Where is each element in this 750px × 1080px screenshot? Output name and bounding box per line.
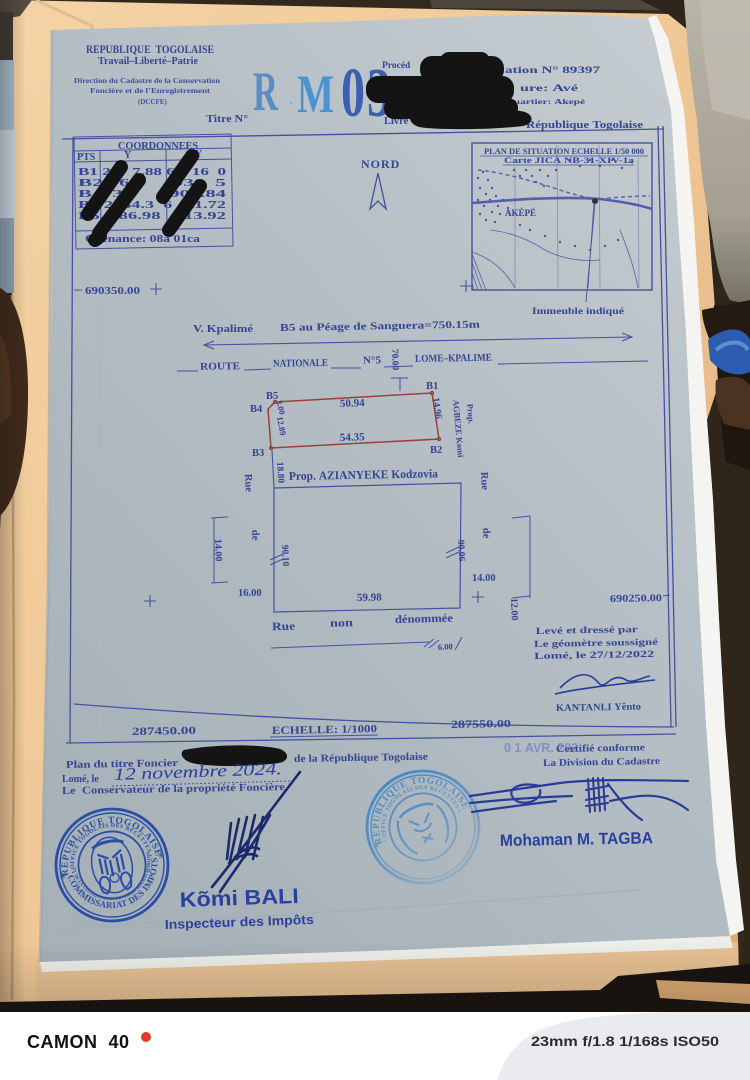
svg-text:ation N° 89397: ation N° 89397 — [505, 65, 600, 76]
svg-text:non: non — [330, 617, 354, 630]
svg-text:La Division du Cadastre: La Division du Cadastre — [543, 756, 661, 769]
svg-text:M: M — [297, 64, 334, 124]
svg-text:N°5: N°5 — [363, 355, 381, 366]
svg-text:690250.00: 690250.00 — [610, 593, 662, 605]
svg-text:Lomé, le: Lomé, le — [62, 774, 99, 785]
svg-text:70.00: 70.00 — [389, 349, 400, 371]
svg-text:V. Kpalimé: V. Kpalimé — [193, 324, 253, 335]
svg-text:287550.00: 287550.00 — [451, 718, 512, 731]
svg-text:Mohaman M. TAGBA: Mohaman M. TAGBA — [500, 829, 653, 850]
svg-text:de la République Togolaise: de la République Togolaise — [294, 752, 429, 765]
svg-text:Rue: Rue — [272, 621, 295, 634]
svg-text:Y: Y — [124, 150, 132, 161]
svg-text:0: 0 — [341, 55, 365, 132]
svg-text:dénommée: dénommée — [395, 613, 453, 627]
svg-text:90.06: 90.06 — [455, 540, 466, 562]
svg-text:12.00: 12.00 — [508, 598, 520, 621]
svg-text:B1: B1 — [426, 381, 438, 392]
svg-text:Titre N°: Titre N° — [206, 114, 248, 125]
svg-text:50.94: 50.94 — [340, 397, 366, 410]
svg-text:Rue: Rue — [242, 474, 254, 493]
svg-text:REPUBLIQUE TOGOLAISE: REPUBLIQUE TOGOLAISE — [86, 42, 214, 56]
svg-text:23mm f/1.8 1/168s ISO50: 23mm f/1.8 1/168s ISO50 — [531, 1033, 719, 1049]
svg-text:6.00: 6.00 — [438, 641, 453, 652]
svg-text:Certifié conforme: Certifié conforme — [556, 742, 646, 755]
svg-text:59.98: 59.98 — [357, 592, 382, 604]
svg-text:Prop. AZIANYEKE Kodzovia: Prop. AZIANYEKE Kodzovia — [289, 466, 438, 483]
svg-text:ure: Avé: ure: Avé — [520, 84, 578, 94]
svg-text:287450.00: 287450.00 — [132, 725, 197, 738]
svg-text:ROUTE: ROUTE — [200, 361, 240, 373]
svg-text:(DCCFE): (DCCFE) — [138, 98, 167, 106]
svg-text:Direction du Cadastre de la Co: Direction du Cadastre de la Conservation — [74, 77, 220, 85]
svg-text:B2: B2 — [430, 445, 442, 456]
svg-text:NORD: NORD — [361, 157, 400, 171]
svg-text:Lomé, le 27/12/2022: Lomé, le 27/12/2022 — [534, 650, 655, 662]
svg-text:90.10: 90.10 — [279, 545, 290, 567]
svg-text:de: de — [249, 530, 261, 541]
svg-text:NATIONALE: NATIONALE — [273, 358, 328, 370]
svg-text:de: de — [480, 528, 492, 539]
svg-text:B4: B4 — [250, 404, 263, 415]
svg-text:14.00: 14.00 — [472, 573, 496, 584]
svg-text:Prop.: Prop. — [465, 403, 477, 424]
svg-text:Rue: Rue — [478, 472, 490, 491]
svg-text:Immeuble indiqué: Immeuble indiqué — [532, 307, 624, 317]
svg-text:Foncière et de l’Enregistremen: Foncière et de l’Enregistrement — [90, 87, 211, 95]
svg-text:18.80: 18.80 — [274, 462, 285, 484]
svg-text:PLAN DE SITUATION ECHELLE 1/50: PLAN DE SITUATION ECHELLE 1/50 000 — [484, 147, 644, 156]
svg-text:14.00: 14.00 — [212, 539, 224, 562]
svg-text:KANTANLI Yênto: KANTANLI Yênto — [556, 702, 641, 714]
svg-text:Procéd: Procéd — [382, 61, 411, 71]
svg-text:PTS: PTS — [77, 152, 96, 163]
svg-text:690350.00: 690350.00 — [85, 286, 140, 297]
svg-text:Travail–Liberté–Patrie: Travail–Liberté–Patrie — [98, 56, 198, 67]
svg-text:B1 28 7.88 6 16 0: B1 28 7.88 6 16 0 — [78, 167, 226, 178]
svg-text:16.00: 16.00 — [238, 588, 262, 599]
svg-text:Levé et dressé par: Levé et dressé par — [536, 625, 639, 637]
svg-text:CAMON 40: CAMON 40 — [27, 1032, 130, 1052]
svg-text:R: R — [253, 61, 278, 123]
svg-text:Kõmi BALI: Kõmi BALI — [179, 885, 299, 912]
svg-text:54.35: 54.35 — [340, 431, 366, 444]
svg-text:LOME–KPALIME: LOME–KPALIME — [415, 353, 492, 365]
svg-text:AKÉPÉ: AKÉPÉ — [505, 208, 536, 218]
svg-text:B3: B3 — [252, 448, 264, 459]
